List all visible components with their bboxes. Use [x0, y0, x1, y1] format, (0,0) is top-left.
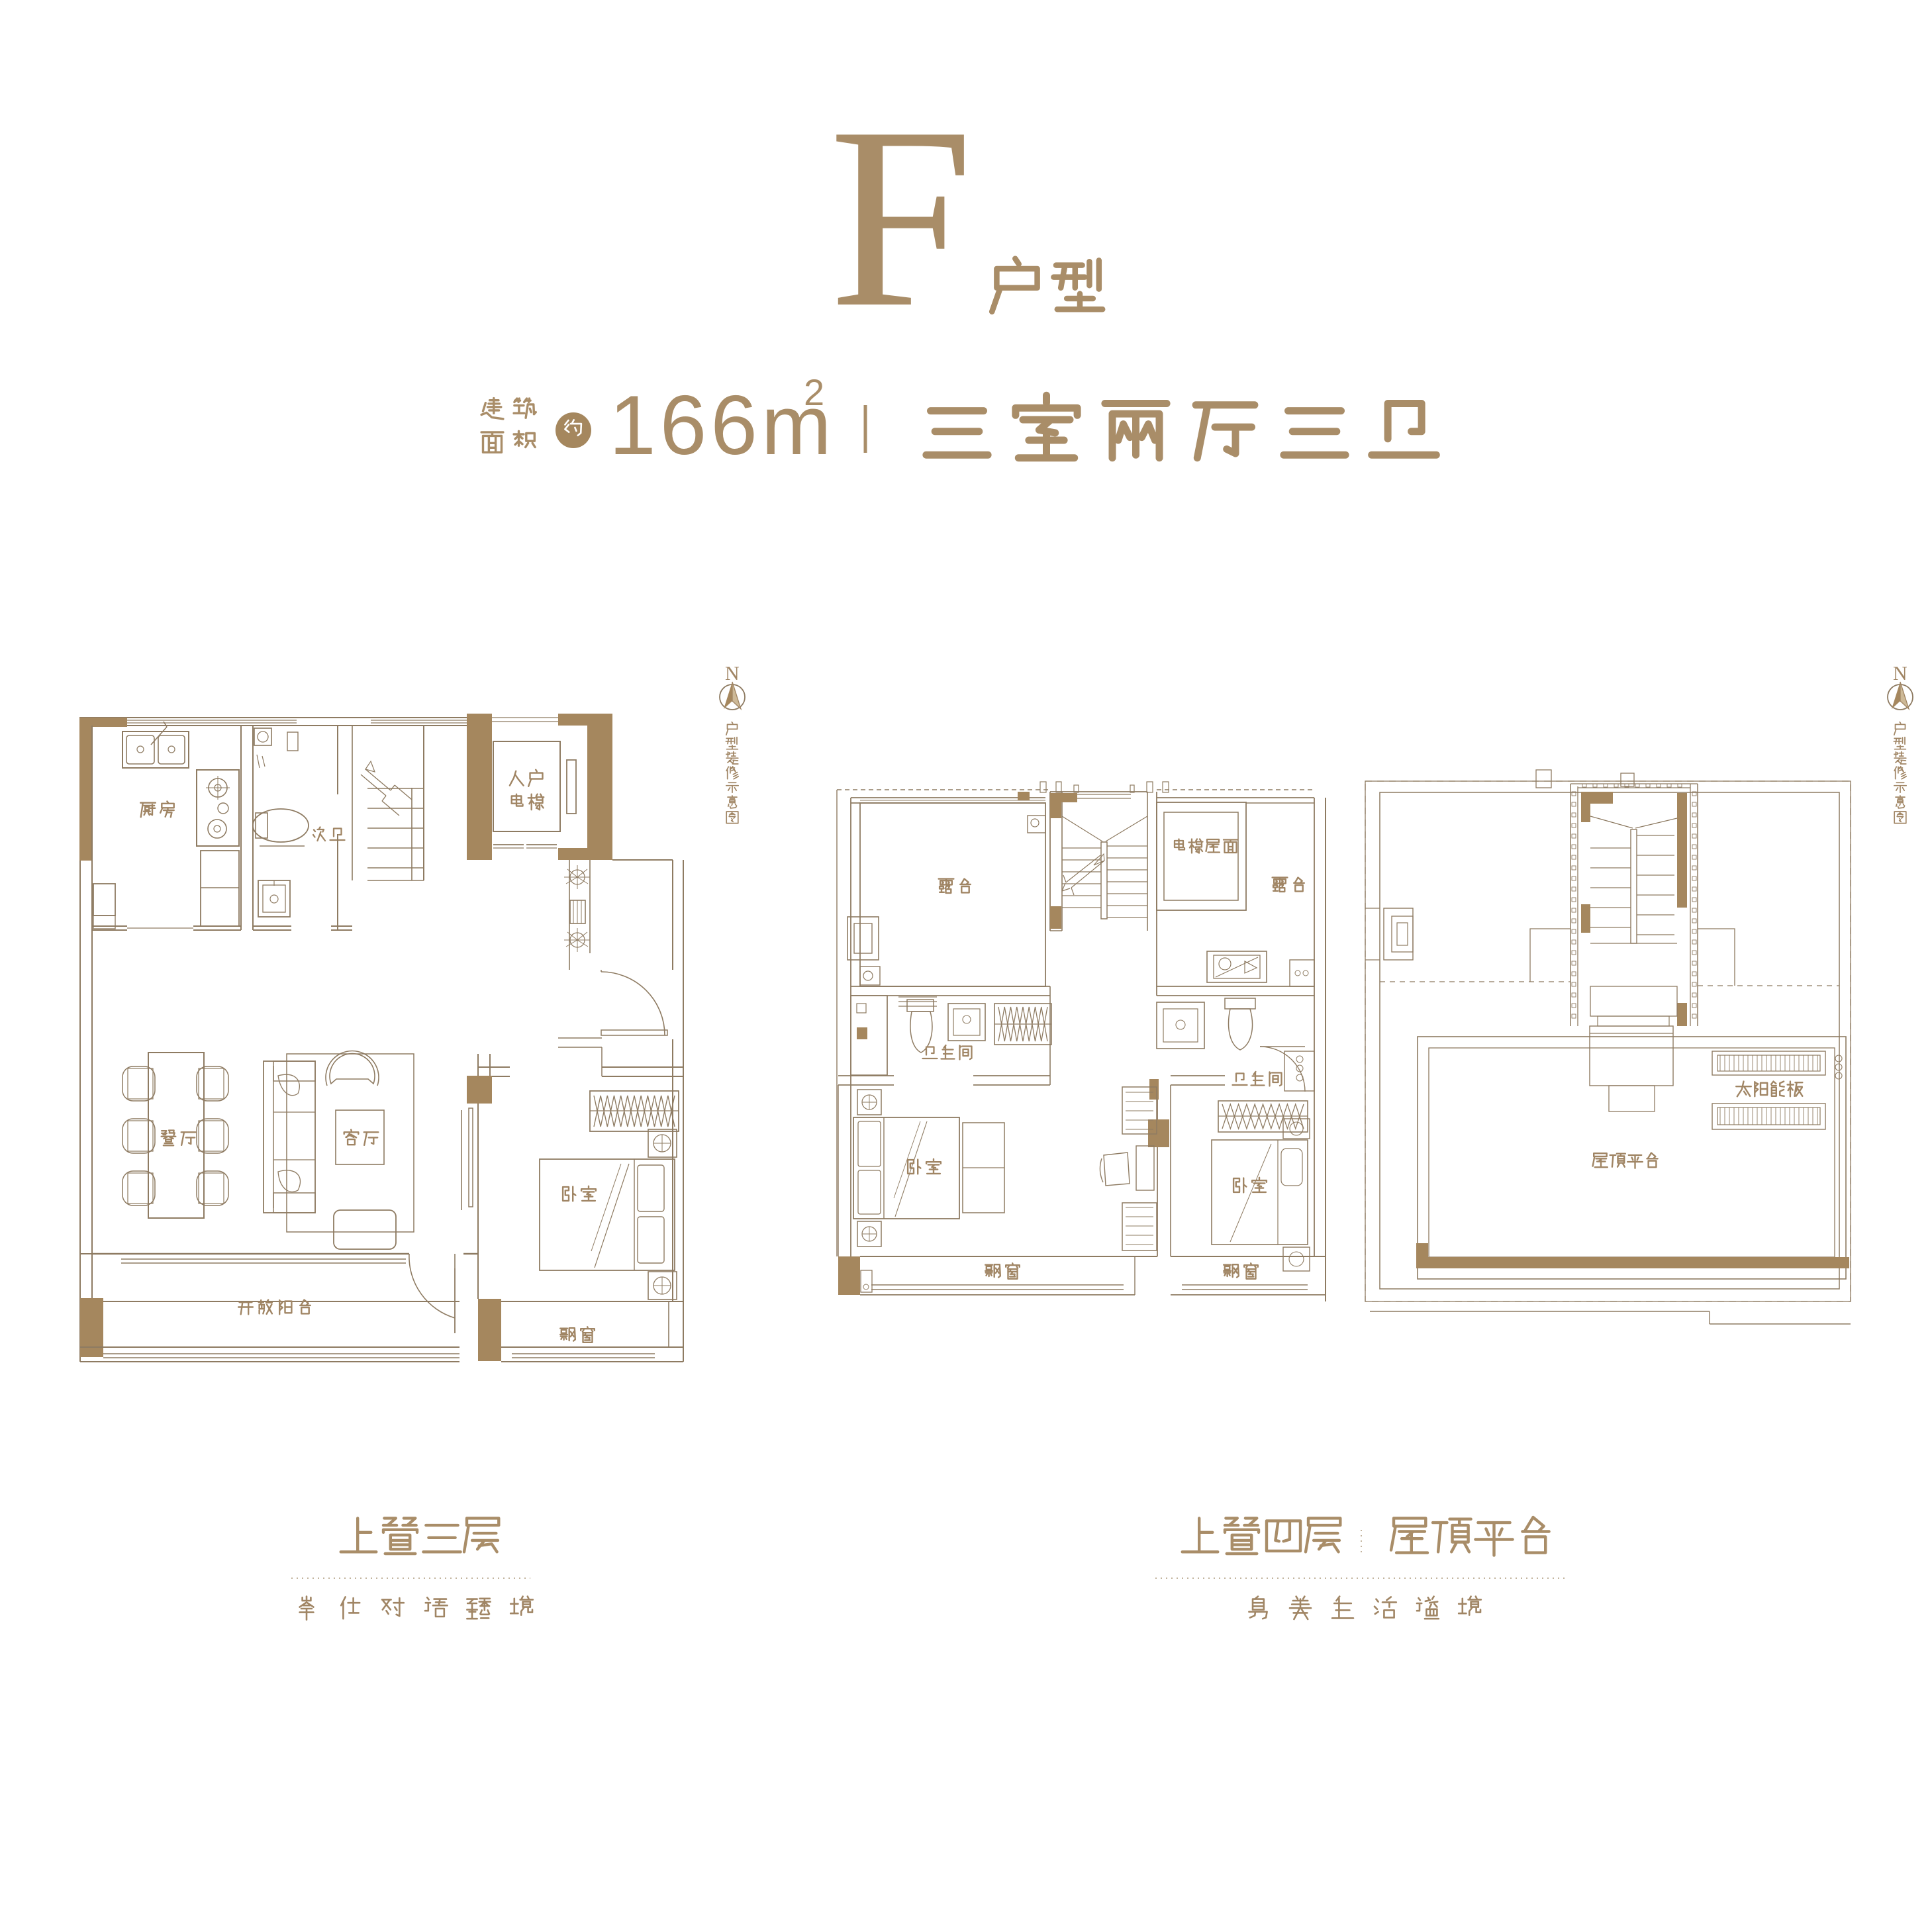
svg-text:N: N — [1893, 663, 1908, 684]
svg-text:166m: 166m — [609, 378, 836, 472]
svg-text:F: F — [829, 73, 973, 361]
svg-text:N: N — [725, 663, 740, 684]
svg-text:2: 2 — [804, 371, 824, 413]
